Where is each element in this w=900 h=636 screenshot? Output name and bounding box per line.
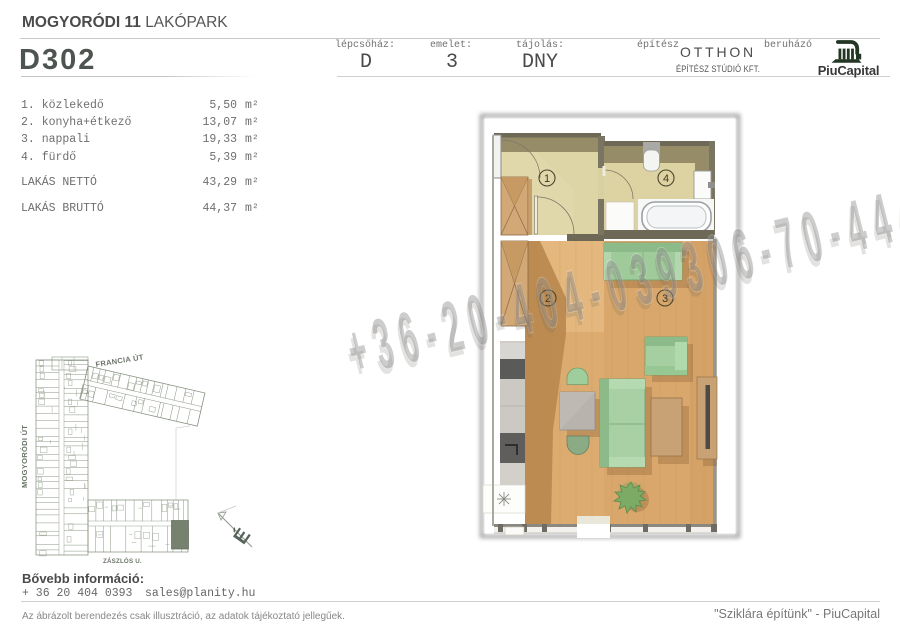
svg-text:1: 1 [544, 173, 550, 185]
svg-text:PiuCapital: PiuCapital [818, 63, 880, 78]
svg-text:MOGYORÓDI ÚT: MOGYORÓDI ÚT [20, 425, 29, 488]
svg-text:FRANCIA ÚT: FRANCIA ÚT [95, 352, 144, 369]
svg-text:4: 4 [663, 173, 669, 185]
svg-text:ZÁSZLÓS U.: ZÁSZLÓS U. [103, 557, 142, 565]
